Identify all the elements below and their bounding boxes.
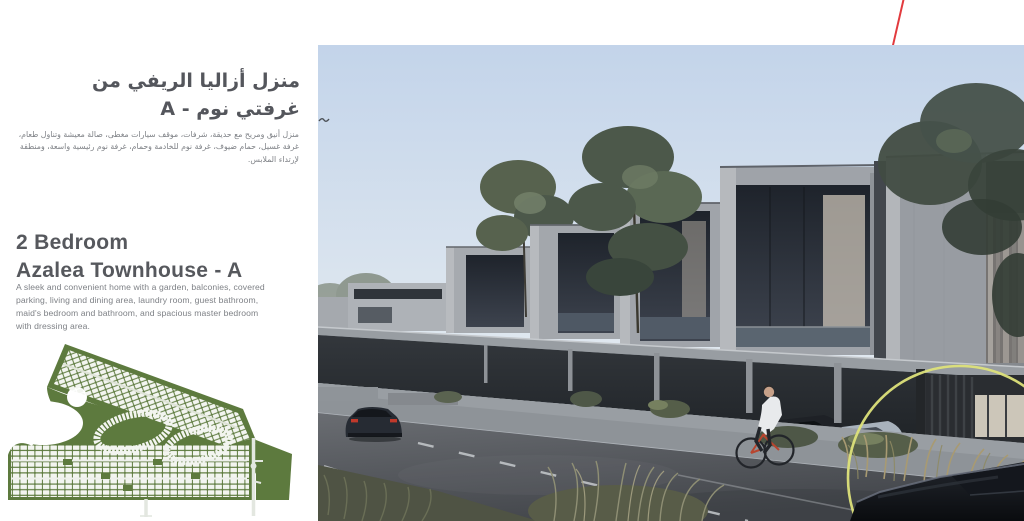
english-title: 2 Bedroom Azalea Townhouse - A: [16, 229, 316, 286]
english-title-line1: 2 Bedroom: [16, 231, 128, 254]
arabic-description: منزل أنيق ومريح مع حديقة، شرفات، موقف سي…: [18, 129, 299, 166]
arabic-title-line1: منزل أزاليا الريفي من: [92, 70, 300, 92]
arabic-title-line2: غرفتي نوم - A: [160, 98, 300, 120]
arabic-title: منزل أزاليا الريفي من غرفتي نوم - A: [10, 68, 300, 123]
red-accent-line: [891, 0, 905, 50]
english-title-line2: Azalea Townhouse - A: [16, 259, 243, 282]
townhouse-unit-2: [720, 165, 883, 355]
townhouse-unit-5: [446, 247, 530, 333]
english-description: A sleek and convenient home with a garde…: [16, 281, 268, 333]
masterplan-map: [4, 333, 296, 521]
townhouse-render-photo: [318, 45, 1024, 521]
